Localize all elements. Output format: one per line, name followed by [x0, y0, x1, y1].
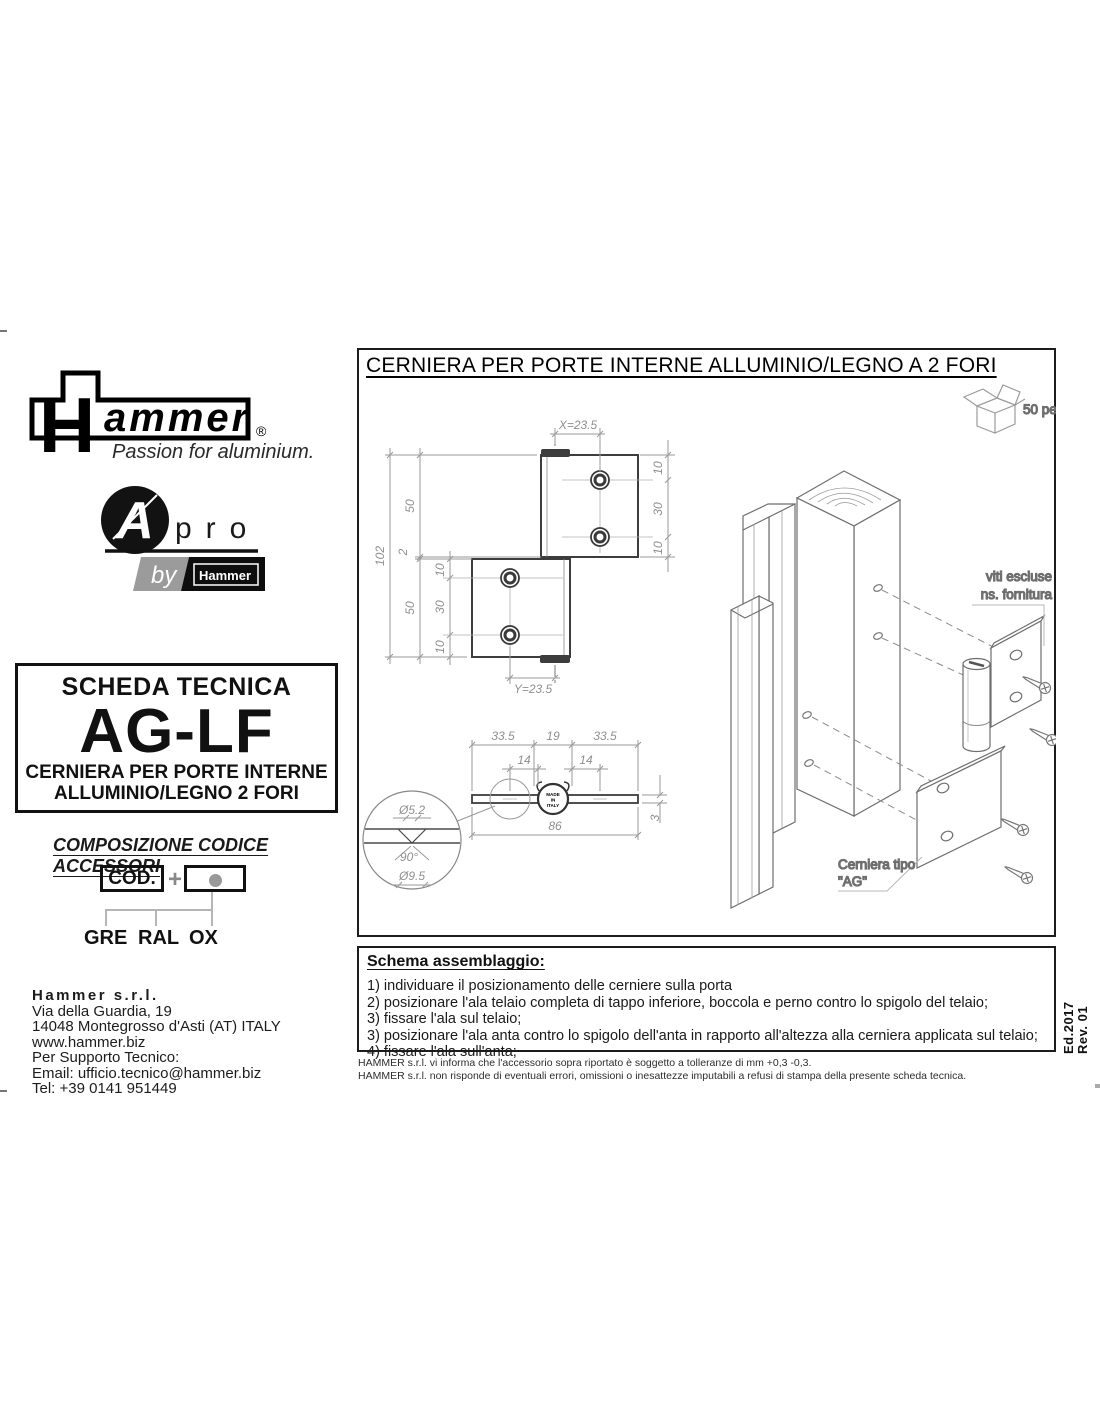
phone: Tel: +39 0141 951449 [32, 1081, 281, 1097]
quantity-label: 50 pezzi [1023, 402, 1056, 417]
dim-wing-height-top: 50 [403, 499, 417, 513]
dim-width-center: 19 [546, 729, 560, 743]
schema-step-2: 2) posizionare l'ala telaio completa di … [367, 995, 1046, 1012]
apro-by-text: by [151, 562, 178, 589]
crop-mark-left-top [0, 330, 7, 332]
dim-lower-hole-bottom: 10 [433, 640, 447, 654]
hammer-logo-text: ammer [104, 396, 250, 440]
schema-step-1: 1) individuare il posizionamento delle c… [367, 978, 1046, 995]
scheda-subtitle-1: CERNIERA PER PORTE INTERNE [18, 762, 335, 783]
company-name: Hammer s.r.l. [32, 988, 281, 1004]
carton-box-icon [964, 385, 1025, 433]
crop-mark-right [1095, 1084, 1100, 1088]
upper-leaf [991, 621, 1041, 727]
hinge-type-line-1: Cerniera tipo [838, 857, 915, 872]
countersink-detail: Ø5.2 90° Ø9.5 [363, 791, 461, 889]
color-dot [209, 874, 222, 887]
made-in-line-1: MADE [546, 792, 560, 797]
disclaimer-line-2: HAMMER s.r.l. non risponde di eventuali … [358, 1070, 966, 1083]
dim-y-offset: Y=23.5 [514, 682, 553, 696]
dim-width-right: 33.5 [593, 729, 617, 743]
cod-label: COD. [103, 868, 161, 890]
address-line-2: 14048 Montegrosso d'Asti (AT) ITALY [32, 1019, 281, 1035]
product-code: AG-LF [18, 702, 335, 762]
option-ox: OX [189, 927, 218, 950]
scheda-subtitle-2: ALLUMINIO/LEGNO 2 FORI [18, 783, 335, 804]
option-ral: RAL [138, 927, 179, 950]
color-code-box [184, 865, 246, 892]
dim-hole-diameter: Ø5.2 [398, 803, 425, 817]
dim-lower-hole-top: 10 [433, 563, 447, 577]
dim-thickness: 3 [648, 814, 662, 821]
lower-wing [472, 559, 570, 657]
registered-mark: ® [256, 423, 267, 439]
website: www.hammer.biz [32, 1035, 281, 1051]
dim-upper-hole-top: 10 [651, 461, 665, 475]
dim-hole-offset-right: 14 [579, 753, 593, 767]
apro-letter-a: A [114, 492, 154, 550]
upper-wing [541, 455, 638, 557]
plus-sign: + [168, 866, 182, 894]
knuckle-cap-top [541, 449, 570, 457]
made-in-line-3: ITALY [547, 803, 560, 808]
edition-label: Ed.2017 [1062, 984, 1076, 1054]
dim-x-offset: X=23.5 [558, 418, 598, 432]
dim-countersink-angle: 90° [400, 850, 418, 864]
dim-upper-hole-bottom: 10 [651, 541, 665, 555]
contact-block: Hammer s.r.l. Via della Guardia, 19 1404… [32, 988, 281, 1097]
connector-drop-1 [105, 909, 107, 926]
screw-3 [998, 814, 1030, 838]
apro-pro-text: pro [175, 512, 260, 545]
knuckle-cylinder [963, 664, 990, 752]
schema-step-3: 3) fissare l'ala sul telaio; [367, 1011, 1046, 1028]
apro-mini-hammer: Hammer [199, 568, 251, 583]
screw-4 [1002, 862, 1034, 886]
revision-label: Rev. 01 [1076, 984, 1090, 1054]
connector-stem [211, 892, 213, 910]
frame-gasket-strip [731, 596, 773, 908]
isometric-view: viti escluse ns. fornitura Cerniera tipo… [731, 385, 1056, 908]
dim-overall-height: 102 [373, 546, 387, 566]
dim-overall-width: 86 [548, 819, 562, 833]
detail-leader [455, 806, 495, 822]
connector-drop-2 [155, 909, 157, 926]
schema-box: Schema assemblaggio: 1) individuare il p… [357, 946, 1056, 1052]
connector-drop-3 [211, 909, 213, 926]
dim-wing-height-bottom: 50 [403, 601, 417, 615]
support-label: Per Supporto Tecnico: [32, 1050, 281, 1066]
knuckle-cap-bottom [540, 655, 570, 663]
dim-upper-hole-span: 30 [651, 502, 665, 516]
crop-mark-left-bottom [0, 1090, 7, 1092]
address-line-1: Via della Guardia, 19 [32, 1004, 281, 1020]
front-view: X=23.5 Y=23.5 102 50 2 50 10 30 10 10 30… [373, 418, 675, 696]
apro-logo: A pro by Hammer [95, 483, 273, 598]
technical-drawing: X=23.5 Y=23.5 102 50 2 50 10 30 10 10 30… [357, 348, 1056, 937]
dim-wing-gap: 2 [396, 548, 410, 556]
brand-tagline: Passion for aluminium. [112, 441, 314, 464]
disclaimer-line-1: HAMMER s.r.l. vi informa che l'accessori… [358, 1057, 966, 1070]
scheda-tecnica-box: SCHEDA TECNICA AG-LF CERNIERA PER PORTE … [15, 663, 338, 813]
made-in-line-2: IN [551, 797, 556, 802]
screws-note-line-2: ns. fornitura [981, 587, 1053, 602]
disclaimer-block: HAMMER s.r.l. vi informa che l'accessori… [358, 1057, 966, 1083]
hammer-logo-h: H [39, 381, 95, 468]
dim-countersink-diameter: Ø9.5 [398, 869, 425, 883]
email: Email: ufficio.tecnico@hammer.biz [32, 1066, 281, 1082]
screw-2 [1027, 724, 1056, 748]
schema-step-4: 3) posizionare l'ala anta contro lo spig… [367, 1028, 1046, 1045]
dim-lower-hole-span: 30 [433, 600, 447, 614]
plan-view: MADE IN ITALY 33.5 19 33.5 14 14 86 3 Ø [363, 729, 667, 889]
connector-bar [105, 909, 213, 911]
hinge-type-line-2: "AG" [838, 874, 867, 889]
cod-box: COD. [100, 865, 164, 892]
dim-hole-offset-left: 14 [517, 753, 531, 767]
schema-steps: 1) individuare il posizionamento delle c… [367, 978, 1046, 1061]
option-gre: GRE [84, 927, 127, 950]
schema-heading: Schema assemblaggio: [367, 953, 1046, 971]
edition-revision: Ed.2017 Rev. 01 [1062, 984, 1090, 1054]
dim-width-left: 33.5 [491, 729, 515, 743]
screws-note-line-1: viti escluse [986, 569, 1052, 584]
